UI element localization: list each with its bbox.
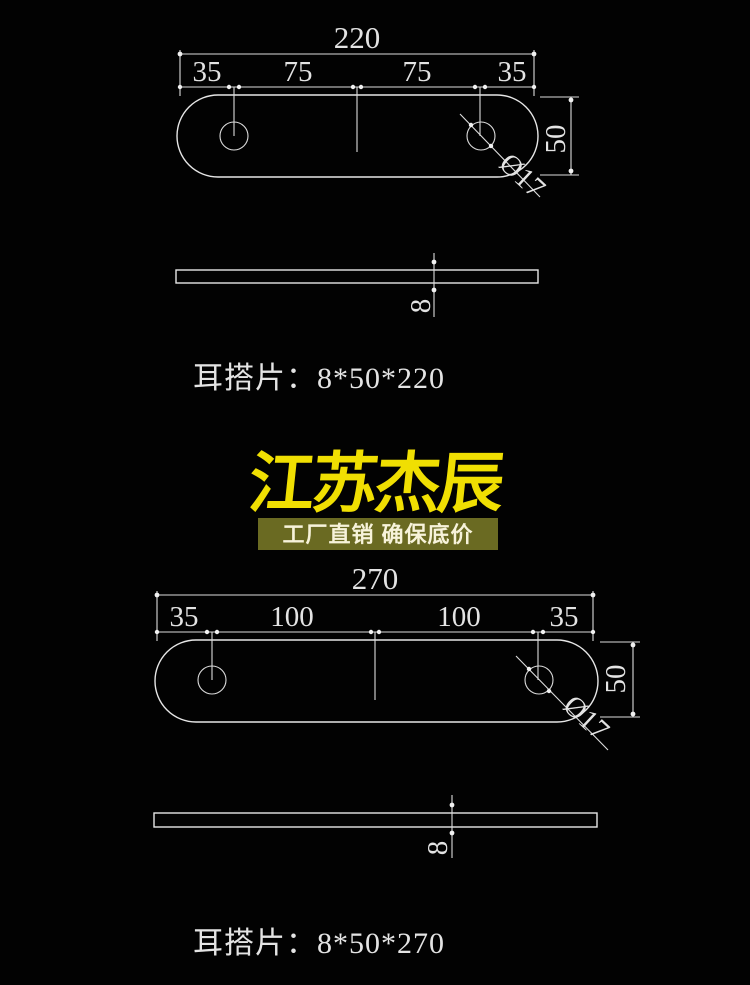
- dim-seg4-bottom: 35: [550, 601, 579, 633]
- dim-hole-diameter-bottom: Ø17: [557, 689, 615, 746]
- dim-total-width-bottom: 270: [352, 561, 399, 596]
- dim-seg2-top: 75: [284, 56, 313, 88]
- dim-hole-diameter-top: Ø17: [493, 147, 551, 204]
- dim-thickness-top: 8: [405, 299, 437, 314]
- drawing-bottom-front-view: 270 35 100 100 35 50 Ø17: [155, 561, 640, 750]
- brand-logo-text: 江苏杰辰: [0, 448, 750, 518]
- drawing-top-front-view: 220 35 75 75 35 50 Ø17: [177, 20, 579, 205]
- dim-height-bottom: 50: [600, 665, 632, 694]
- cad-sheet-background: 220 35 75 75 35 50 Ø17: [0, 0, 750, 985]
- dim-thickness-bottom: 8: [422, 841, 454, 856]
- brand-tagline-banner: 工厂直销 确保底价: [258, 518, 498, 550]
- part-label-bottom: 耳搭片：8*50*270: [193, 918, 445, 962]
- dim-height-top: 50: [540, 125, 572, 154]
- drawing-bottom-side-view: 8: [154, 795, 597, 858]
- dim-seg1-top: 35: [193, 56, 222, 88]
- plate-outline-bottom: [155, 640, 598, 722]
- drawing-top-side-view: 8: [176, 253, 538, 317]
- dim-seg2-bottom: 100: [270, 601, 314, 633]
- dim-total-width-top: 220: [334, 20, 381, 55]
- dim-seg3-top: 75: [403, 56, 432, 88]
- plate-side-top: [176, 270, 538, 283]
- plate-side-bottom: [154, 813, 597, 827]
- dim-seg3-bottom: 100: [437, 601, 481, 633]
- dim-seg1-bottom: 35: [170, 601, 199, 633]
- dim-seg4-top: 35: [498, 56, 527, 88]
- part-label-top: 耳搭片：8*50*220: [193, 353, 445, 397]
